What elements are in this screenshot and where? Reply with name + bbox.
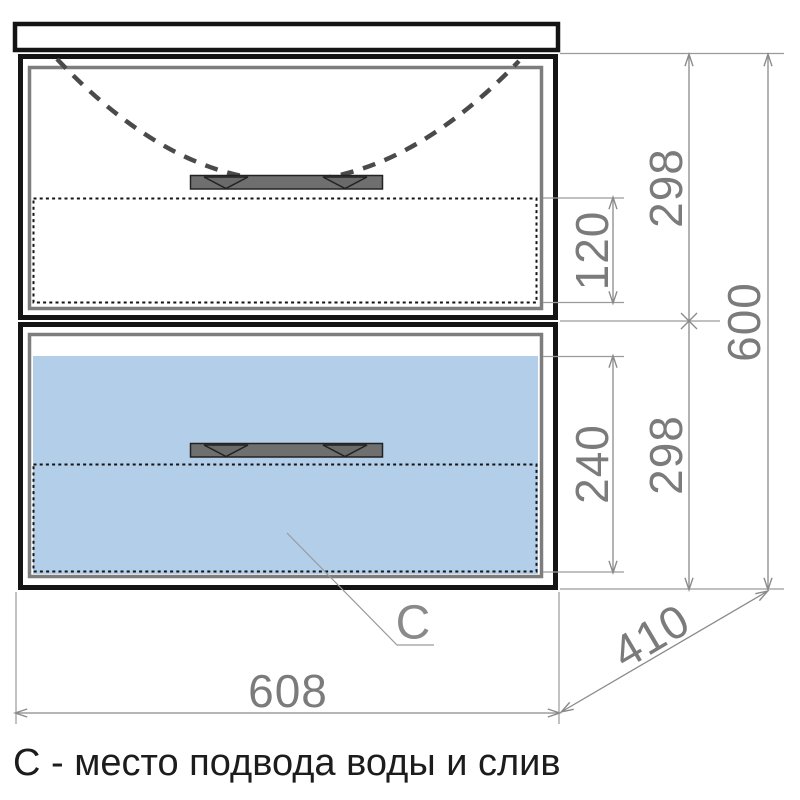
cabinet-dimension-drawing: 298 120 298 240 600 608 410 C С - место … bbox=[0, 0, 800, 800]
technical-drawing-page: 298 120 298 240 600 608 410 C С - место … bbox=[0, 0, 800, 800]
top-drawer-handle bbox=[191, 176, 383, 190]
bottom-drawer-handle bbox=[191, 444, 383, 458]
dim-label-total-height: 600 bbox=[718, 282, 770, 362]
countertop-panel bbox=[15, 24, 558, 50]
dim-label-bottom-drawer-height: 298 bbox=[640, 415, 692, 495]
leader-label: C bbox=[396, 597, 431, 650]
caption-legend: С - место подвода воды и слив bbox=[13, 742, 561, 784]
dim-label-top-drawer-height: 298 bbox=[640, 148, 692, 228]
dim-label-bottom-service-zone: 240 bbox=[566, 424, 618, 504]
cabinet-outline bbox=[15, 24, 558, 588]
dim-label-top-service-zone: 120 bbox=[566, 211, 618, 291]
dim-label-width: 608 bbox=[248, 665, 328, 717]
dim-label-depth: 410 bbox=[603, 593, 698, 678]
